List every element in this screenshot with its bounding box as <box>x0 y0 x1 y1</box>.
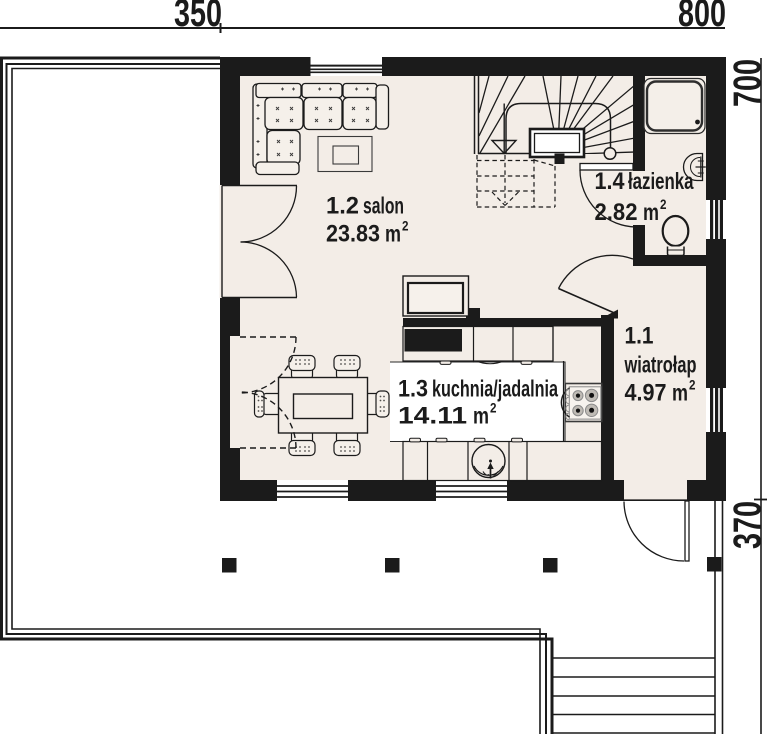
svg-text:1.4: 1.4 <box>595 168 626 195</box>
svg-text:700: 700 <box>727 59 767 107</box>
svg-text:m: m <box>385 221 401 247</box>
svg-text:m: m <box>643 199 659 225</box>
svg-text:salon: salon <box>363 193 404 219</box>
svg-text:4.97: 4.97 <box>625 380 667 407</box>
svg-text:1.1: 1.1 <box>625 323 654 350</box>
svg-text:2.82: 2.82 <box>595 199 638 226</box>
svg-text:2: 2 <box>689 377 696 393</box>
svg-text:2: 2 <box>402 218 409 234</box>
svg-text:łazienka: łazienka <box>628 168 694 194</box>
svg-text:23.83: 23.83 <box>326 221 380 248</box>
svg-text:2: 2 <box>490 400 497 416</box>
svg-text:m: m <box>672 380 688 406</box>
svg-text:14.11: 14.11 <box>398 403 467 430</box>
svg-text:370: 370 <box>727 501 767 549</box>
svg-text:800: 800 <box>678 0 726 35</box>
svg-text:350: 350 <box>174 0 222 35</box>
svg-text:1.3: 1.3 <box>398 376 428 403</box>
svg-text:kuchnia/jadalnia: kuchnia/jadalnia <box>432 376 558 402</box>
svg-text:1.2: 1.2 <box>326 193 359 220</box>
svg-text:wiatrołap: wiatrołap <box>624 352 697 378</box>
svg-text:m: m <box>473 403 489 429</box>
svg-text:2: 2 <box>660 196 667 212</box>
